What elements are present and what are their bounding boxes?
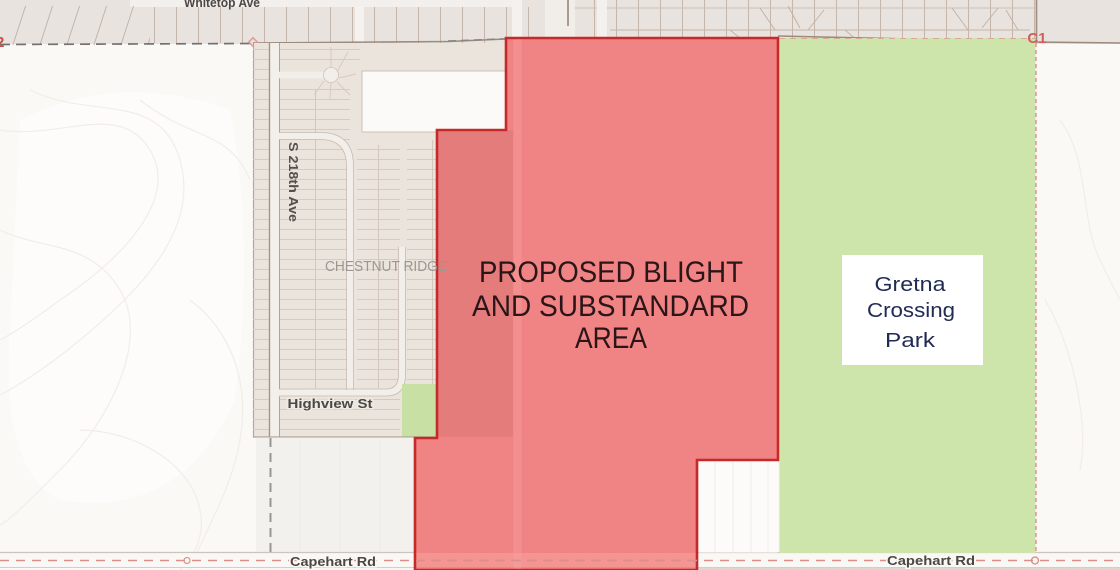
svg-text:Crossing: Crossing [867,300,955,322]
svg-text:PROPOSED BLIGHT: PROPOSED BLIGHT [479,256,743,289]
svg-text:Highview St: Highview St [288,396,374,411]
svg-text:2: 2 [0,34,4,51]
svg-text:Park: Park [885,330,936,352]
svg-text:S 218th Ave: S 218th Ave [286,142,300,222]
svg-text:CHESTNUT RIDGE: CHESTNUT RIDGE [325,258,447,275]
svg-text:C1: C1 [1027,30,1046,47]
svg-text:AND SUBSTANDARD: AND SUBSTANDARD [472,290,749,323]
svg-text:Capehart Rd: Capehart Rd [290,554,376,569]
svg-text:Gretna: Gretna [875,274,947,296]
svg-text:AREA: AREA [575,322,647,355]
svg-text:Whitetop Ave: Whitetop Ave [184,0,260,10]
svg-text:Capehart Rd: Capehart Rd [887,553,975,568]
